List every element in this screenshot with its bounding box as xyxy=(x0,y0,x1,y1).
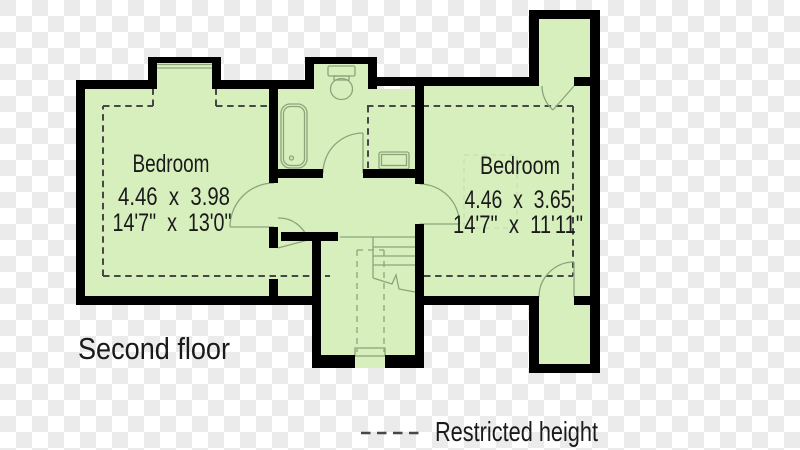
right-bedroom-dimensions-imperial: 14'7" x 11'11" xyxy=(453,211,583,239)
wall-segment xyxy=(529,10,539,86)
cupboard-door-opening xyxy=(269,248,278,279)
wall-segment xyxy=(281,232,338,241)
stairwell-floor xyxy=(321,296,415,355)
wall-segment xyxy=(269,89,278,183)
wall-segment xyxy=(269,227,278,248)
right-bedroom-dimensions-metric: 4.46 x 3.65 xyxy=(465,186,572,214)
wall-segment xyxy=(76,80,148,89)
wall-segment xyxy=(415,85,424,184)
wall-segment xyxy=(305,57,377,64)
wall-segment xyxy=(312,355,355,368)
wall-segment xyxy=(363,169,415,178)
wall-segment xyxy=(76,80,85,305)
left-bedroom-dimensions-imperial: 14'7" x 13'0" xyxy=(113,209,232,237)
wall-segment xyxy=(574,296,590,305)
left-bedroom-dimensions-metric: 4.46 x 3.98 xyxy=(118,183,230,211)
closet-door-opening xyxy=(539,77,574,86)
stair-window-gap xyxy=(355,355,385,368)
wall-segment xyxy=(377,77,529,86)
wall-segment xyxy=(221,80,305,89)
wall-segment xyxy=(385,355,424,368)
top-right-closet-floor xyxy=(539,19,590,85)
floor-title: Second floor xyxy=(78,331,230,366)
legend-label: Restricted height xyxy=(435,416,598,447)
wall-segment xyxy=(590,10,600,373)
wall-segment xyxy=(278,169,323,178)
floorplan-canvas: Bedroom 4.46 x 3.98 14'7" x 13'0" Bedroo… xyxy=(0,0,800,450)
wall-segment xyxy=(574,77,590,86)
left-bedroom-label: Bedroom xyxy=(133,150,210,178)
wall-segment xyxy=(424,296,529,305)
right-bedroom-door-opening xyxy=(415,184,424,224)
wall-segment xyxy=(76,296,312,305)
wall-segment xyxy=(415,224,424,368)
bathroom-door-opening xyxy=(323,169,363,178)
wall-segment xyxy=(148,57,221,63)
wall-segment xyxy=(312,232,321,368)
wall-segment xyxy=(529,10,600,19)
wall-segment xyxy=(529,364,600,373)
wall-segment xyxy=(368,57,377,89)
bottom-right-store-floor xyxy=(539,305,590,364)
store-door-opening xyxy=(539,296,574,305)
dormer-floor xyxy=(157,63,212,89)
wall-segment xyxy=(529,296,539,373)
wall-segment xyxy=(212,57,221,89)
left-bedroom-door-opening xyxy=(269,183,278,227)
floorplan-svg: Bedroom 4.46 x 3.98 14'7" x 13'0" Bedroo… xyxy=(0,0,800,450)
right-bedroom-label: Bedroom xyxy=(480,152,560,180)
